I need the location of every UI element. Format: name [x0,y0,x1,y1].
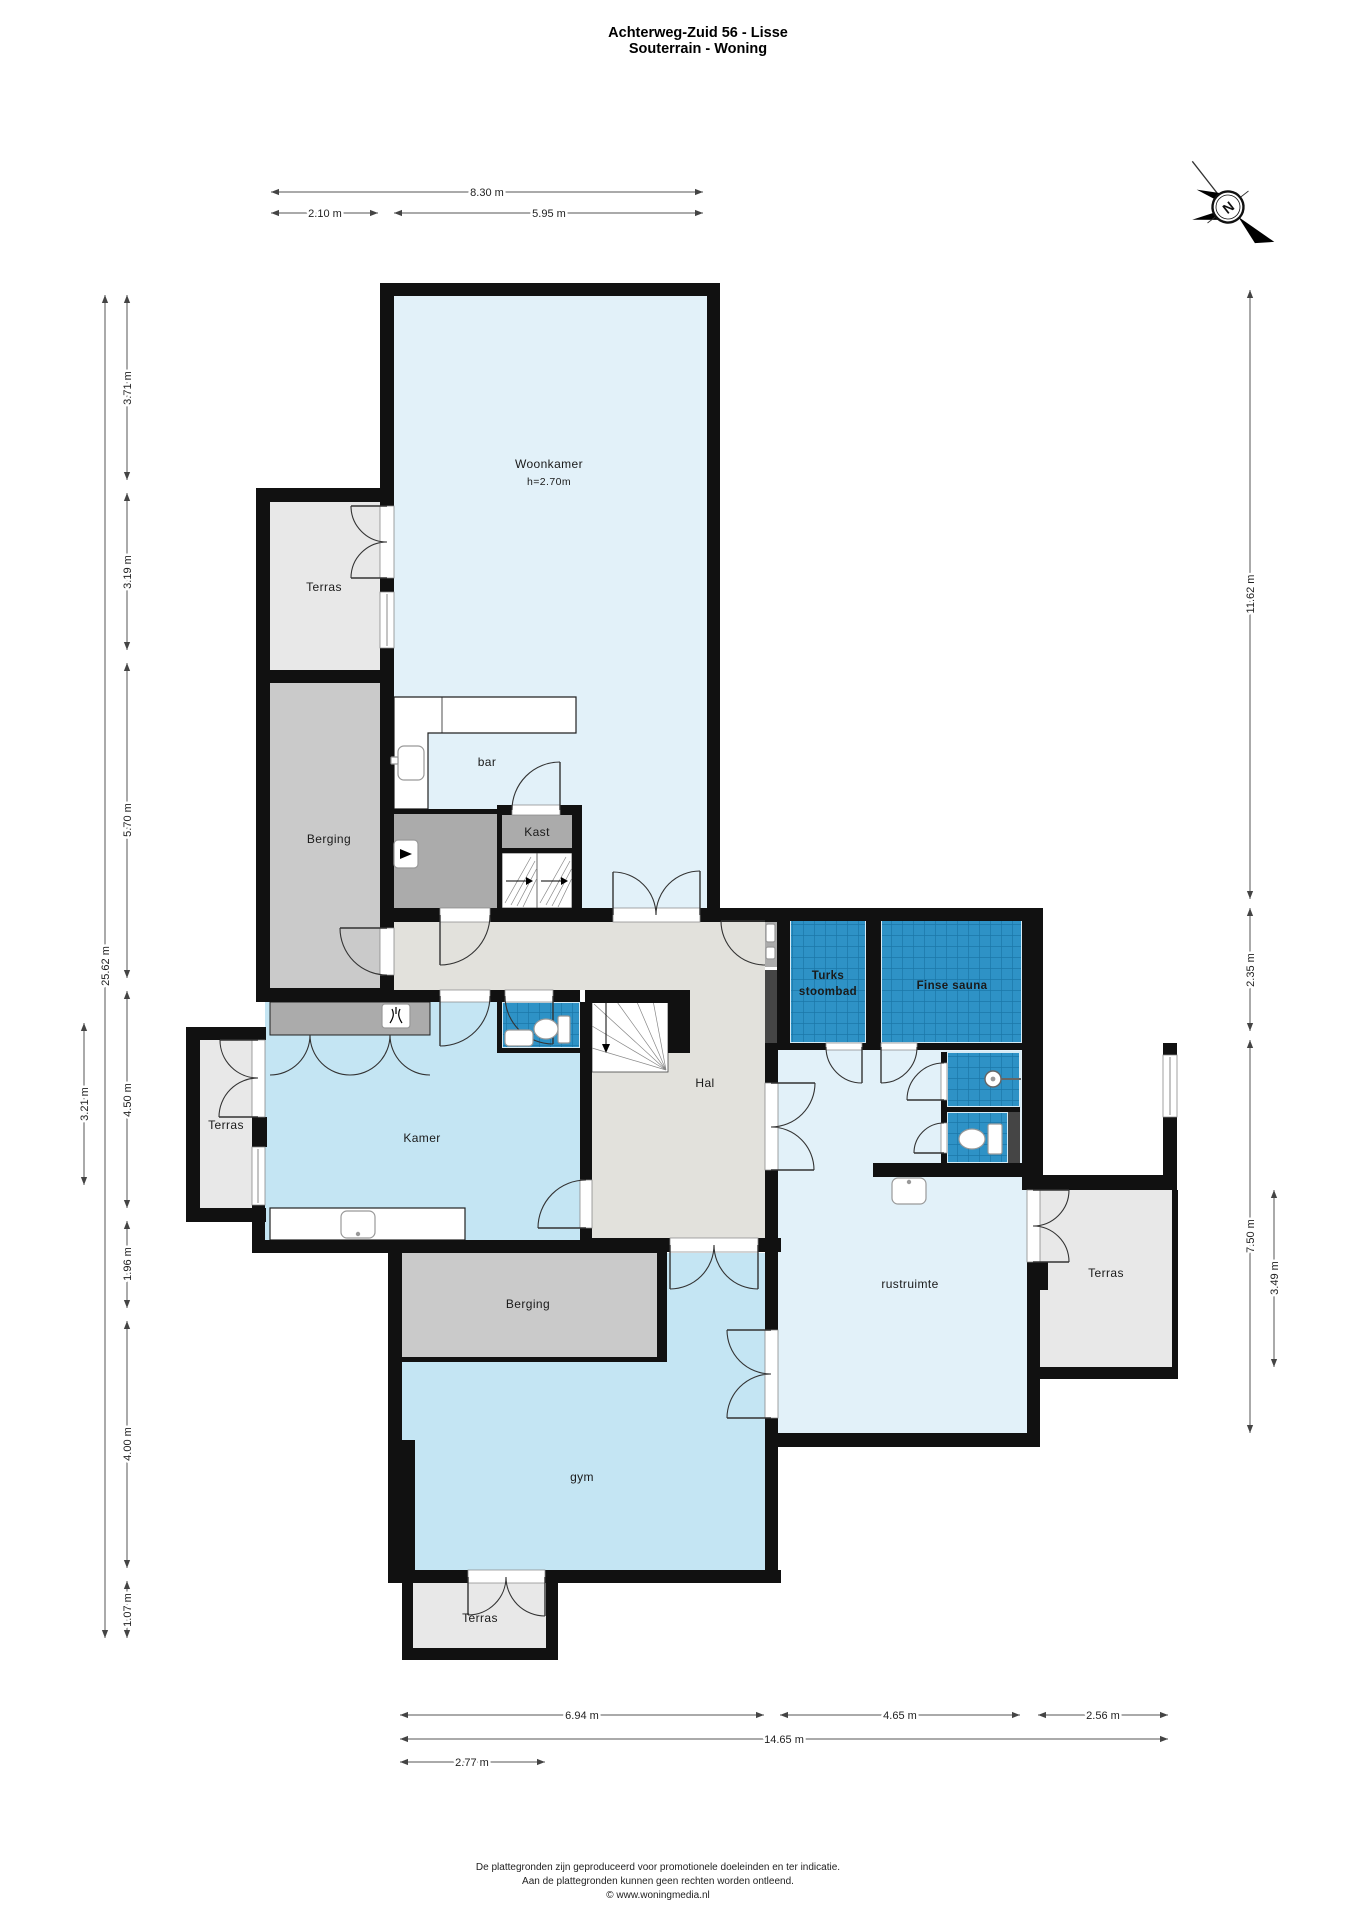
label-hal: Hal [695,1076,714,1090]
label-berging-south: Berging [506,1297,550,1311]
shower-head-center [991,1077,996,1082]
label-kamer: Kamer [403,1131,440,1145]
page-title-line2: Souterrain - Woning [629,41,767,57]
dim-label-bottom-1465: 14.65 m [764,1734,804,1746]
label-turks-line1: Turks [812,970,844,982]
label-kast: Kast [524,825,550,839]
bar-sink-icon [398,746,424,780]
footer-line3: © www.woningmedia.nl [606,1890,710,1901]
dim-label-left-450: 4.50 m [122,1083,134,1117]
dim-label-left-319: 3.19 m [122,555,134,589]
compass-tick-right [1241,191,1249,197]
floor-plan-canvas: Woonkamer h=2.70m Terras Berging bar Kas… [0,0,1358,1920]
label-terras-nw: Terras [306,580,342,594]
label-terras-east: Terras [1088,1266,1124,1280]
dim-label-top-210: 2.10 m [308,208,342,220]
dim-label-right-1162: 11.62 m [1245,575,1257,614]
footer-line2: Aan de plattegronden kunnen geen rechten… [522,1876,794,1887]
dim-label-bottom-277: 2.77 m [455,1757,489,1769]
dim-label-top-595: 5.95 m [532,208,566,220]
label-finse-sauna: Finse sauna [917,980,988,992]
dim-label-left-321: 3.21 m [79,1087,91,1121]
dim-label-top-830: 8.30 m [470,187,504,199]
footer-line1: De plattegronden zijn geproduceerd voor … [476,1862,840,1873]
kamer-wc-cistern [558,1016,570,1043]
label-turks-line2: stoombad [799,986,857,998]
dim-label-bottom-256: 2.56 m [1086,1710,1120,1722]
label-gym: gym [570,1470,594,1484]
toilet-icon [959,1129,985,1149]
dim-label-right-349: 3.49 m [1269,1261,1281,1295]
label-woonkamer: Woonkamer [515,457,583,471]
stairs-winder [592,995,668,1072]
stairs-straight [502,853,572,908]
label-terras-west: Terras [208,1118,244,1132]
page-title-line1: Achterweg-Zuid 56 - Lisse [608,25,788,41]
dim-label-left-570: 5.70 m [122,803,134,837]
dim-label-bottom-694: 6.94 m [565,1710,599,1722]
label-rustruimte: rustruimte [881,1277,938,1291]
label-berging-west: Berging [307,832,351,846]
kamer-sink-tap [356,1232,360,1236]
dim-label-right-235: 2.35 m [1245,953,1257,987]
label-woonkamer-height: h=2.70m [527,476,571,488]
cistern-wall [1008,1112,1020,1163]
dim-label-left-400: 4.00 m [122,1427,134,1461]
dim-label-left-total: 25.62 m [100,946,112,986]
label-bar: bar [478,755,497,769]
rust-washbasin-tap [907,1180,911,1184]
shaft [765,970,777,1043]
compass-rose: N [1164,145,1283,273]
niche-fixture-a [766,924,775,942]
wc-cistern [988,1124,1002,1154]
kamer-toilet-icon [534,1019,558,1039]
dim-label-bottom-465: 4.65 m [883,1710,917,1722]
stairs-winder-outline [592,995,668,1072]
dim-label-left-107: 1.07 m [122,1593,134,1627]
kamer-washbasin-icon [505,1030,533,1046]
dim-label-left-371: 3.71 m [122,371,134,405]
label-terras-south: Terras [462,1611,498,1625]
dim-label-left-196: 1.96 m [122,1247,134,1281]
dim-label-right-750: 7.50 m [1245,1219,1257,1253]
bar-sink-tap [391,757,398,764]
niche-fixture-b [766,947,775,959]
